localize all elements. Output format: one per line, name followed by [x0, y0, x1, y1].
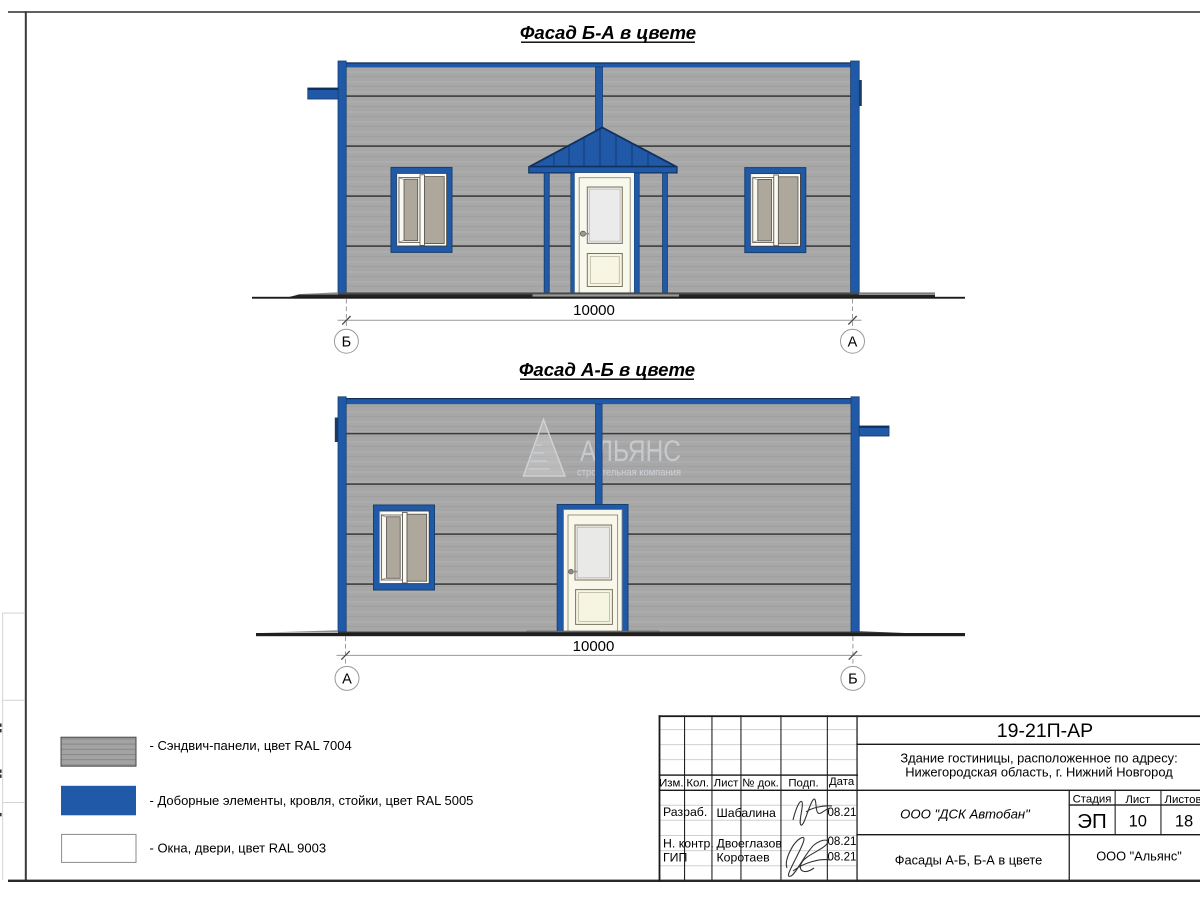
svg-text:Стадия: Стадия: [1073, 794, 1112, 806]
svg-text:Нижегородская область, г. Нижн: Нижегородская область, г. Нижний Новгоро…: [905, 765, 1173, 780]
svg-text:08.21: 08.21: [827, 806, 856, 819]
svg-text:Дата: Дата: [829, 776, 855, 788]
svg-text:Коротаев: Коротаев: [717, 851, 770, 865]
svg-text:Листов: Листов: [1164, 794, 1200, 806]
svg-text:А: А: [848, 334, 858, 350]
svg-text:ГИП: ГИП: [663, 851, 687, 865]
svg-text:Б: Б: [848, 672, 858, 688]
svg-text:- Сэндвич-панели, цвет RAL 700: - Сэндвич-панели, цвет RAL 7004: [150, 738, 352, 753]
svg-text:Лист: Лист: [1125, 794, 1151, 806]
svg-text:ООО "ДСК Автобан": ООО "ДСК Автобан": [900, 807, 1031, 822]
svg-text:Фасад А-Б в цвете: Фасад А-Б в цвете: [519, 359, 695, 380]
svg-text:Лист: Лист: [714, 777, 740, 789]
svg-text:Б: Б: [342, 334, 352, 350]
svg-text:строительная компания: строительная компания: [577, 468, 681, 479]
svg-text:Фасад Б-А в цвете: Фасад Б-А в цвете: [520, 22, 696, 43]
svg-text:08.21: 08.21: [827, 835, 856, 848]
svg-text:ООО "Альянс": ООО "Альянс": [1096, 849, 1182, 864]
svg-text:10000: 10000: [573, 302, 615, 319]
svg-text:Кол.: Кол.: [686, 777, 709, 789]
svg-text:ЭП: ЭП: [1077, 810, 1106, 833]
svg-text:10000: 10000: [573, 638, 615, 655]
svg-text:08.21: 08.21: [827, 851, 856, 864]
svg-text:Разраб.: Разраб.: [663, 805, 707, 819]
svg-text:Двоеглазов: Двоеглазов: [717, 837, 782, 851]
svg-text:Шабалина: Шабалина: [717, 806, 777, 820]
svg-text:Здание гостиницы, расположенно: Здание гостиницы, расположенное по адрес…: [900, 751, 1177, 766]
svg-text:19-21П-АР: 19-21П-АР: [997, 720, 1093, 742]
svg-text:- Доборные элементы, кровля, с: - Доборные элементы, кровля, стойки, цве…: [150, 793, 474, 808]
svg-text:Н. контр.: Н. контр.: [663, 837, 714, 851]
svg-text:- Окна, двери, цвет RAL 9003: - Окна, двери, цвет RAL 9003: [150, 841, 327, 856]
svg-text:Подп.: Подп.: [788, 777, 818, 789]
svg-text:№ док.: № док.: [742, 777, 779, 789]
svg-text:10: 10: [1129, 813, 1147, 831]
svg-text:Изм.: Изм.: [659, 777, 683, 789]
svg-text:Фасады А-Б, Б-А в цвете: Фасады А-Б, Б-А в цвете: [895, 853, 1043, 868]
svg-text:18: 18: [1175, 813, 1193, 831]
svg-text:А: А: [342, 672, 352, 688]
